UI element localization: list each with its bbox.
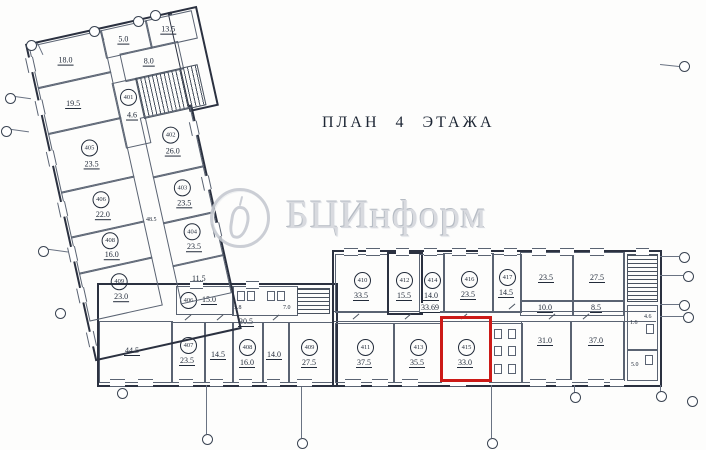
axis-leader-line [660, 316, 683, 317]
room-14-0[interactable]: 14.0 [262, 322, 290, 383]
corridor-10-0-area: 10.0 [537, 303, 553, 313]
wc-b-area: 7.0 [283, 305, 291, 311]
window [344, 248, 358, 256]
axis-leader-line [660, 275, 683, 276]
window [452, 248, 466, 256]
axis-leader-line [206, 385, 207, 434]
room-409-area: 27.5 [301, 358, 317, 368]
axis-marker [683, 312, 694, 323]
window [372, 379, 388, 387]
room-407-area: 23.5 [179, 356, 195, 366]
axis-marker [679, 252, 690, 263]
room-8-area: 8.0 [143, 57, 155, 67]
window [478, 248, 491, 256]
window [588, 379, 604, 387]
toilet-fixture [277, 291, 285, 301]
axis-leader-line [660, 256, 679, 257]
annex-4-6-area: 4.6 [644, 314, 652, 320]
window [636, 248, 649, 256]
toilet-fixture [494, 346, 502, 356]
staircase-right-wing [627, 254, 658, 302]
toilet-fixture [646, 324, 654, 334]
room-409-west-number: 409 [111, 273, 128, 290]
room-23-5-east[interactable]: 23.5 [520, 252, 574, 302]
axis-leader-line [660, 64, 679, 67]
axis-marker [26, 40, 37, 51]
room-5-area: 5.0 [117, 35, 129, 45]
room-23-5-east-area: 23.5 [538, 273, 554, 283]
room-415-selected[interactable]: 415 33.0 [440, 316, 492, 382]
axis-marker [1, 126, 12, 137]
window [110, 379, 125, 387]
axis-leader-line [9, 129, 29, 133]
toilet-fixture [645, 355, 653, 365]
toilet-fixture [494, 364, 502, 374]
room-408-west-number: 408 [102, 232, 119, 249]
window [424, 248, 437, 256]
room-403-area: 23.5 [176, 198, 192, 208]
corridor-10-0[interactable]: 10.0 [520, 300, 574, 316]
axis-marker [5, 93, 16, 104]
room-409-west-area: 23.0 [113, 292, 129, 302]
window [590, 248, 604, 256]
room-401-number: 401 [120, 89, 137, 106]
watermark-text: БЦИнформ [286, 195, 487, 235]
staircase-junction [297, 288, 330, 314]
plan-title: ПЛАН 4 ЭТАЖА [322, 114, 495, 132]
room-417-area: 14.5 [498, 288, 514, 298]
wc-right-annex[interactable]: 1.6 4.6 [627, 305, 658, 351]
toilet-fixture [494, 329, 502, 339]
window [267, 379, 280, 387]
toilet-fixture [267, 291, 275, 301]
toilet-fixture [508, 329, 516, 339]
toilet-fixture [508, 364, 516, 374]
room-403-number: 403 [174, 179, 191, 196]
axis-marker [55, 308, 66, 319]
room-406-west-number: 406 [93, 191, 110, 208]
axis-marker [679, 300, 690, 311]
room-401-area: 4.6 [126, 111, 138, 121]
window [190, 281, 203, 289]
axis-marker [570, 392, 581, 403]
room-411[interactable]: 411 37.5 [335, 323, 395, 383]
room-409-number: 409 [301, 339, 318, 356]
room-417[interactable]: 417 14.5 [492, 254, 522, 313]
room-414-number: 414 [424, 272, 441, 289]
room-416[interactable]: 416 23.5 [443, 253, 494, 313]
axis-marker [133, 16, 144, 27]
corridor-dim-48-5: 48.5 [146, 217, 157, 223]
room-405-area: 23.5 [84, 159, 100, 169]
room-410-area: 33.5 [353, 291, 369, 301]
room-31-0-area: 31.0 [537, 336, 553, 346]
corridor-8-5[interactable]: 8.5 [572, 300, 624, 316]
room-409[interactable]: 409 27.5 [288, 322, 334, 383]
corridor-33-69-area: 33.69 [420, 303, 440, 313]
axis-marker [487, 438, 498, 449]
room-31-0[interactable]: 31.0 [521, 321, 572, 383]
axis-leader-line [491, 385, 492, 438]
annex-wall [624, 252, 625, 381]
room-408-number: 408 [239, 339, 256, 356]
window [189, 121, 200, 136]
axis-leader-line [301, 385, 302, 438]
room-13-5-area: 13.5 [160, 25, 176, 35]
room-402-area: 26.0 [165, 147, 181, 157]
window [504, 248, 517, 256]
room-408-west-area: 16.0 [104, 250, 120, 260]
window [138, 379, 153, 387]
room-19-5-area: 19.5 [65, 99, 81, 109]
room-412-area: 15.5 [396, 291, 412, 301]
axis-marker [679, 61, 690, 72]
window [201, 175, 212, 190]
room-412-number: 412 [396, 272, 413, 289]
room-410-number: 410 [354, 272, 371, 289]
room-411-area: 37.5 [356, 358, 372, 368]
window [179, 379, 193, 387]
wc-right-wing[interactable] [489, 323, 523, 383]
axis-marker [656, 391, 667, 402]
axis-marker [297, 438, 308, 449]
room-404-area: 23.5 [186, 242, 202, 252]
window [610, 379, 624, 387]
window [366, 248, 380, 256]
room-14-0-area: 14.0 [266, 350, 282, 360]
window [402, 379, 418, 387]
room-413[interactable]: 413 35.5 [393, 323, 442, 383]
room-408-area: 16.0 [239, 358, 255, 368]
window [396, 248, 409, 256]
room-414-area: 14.0 [423, 291, 439, 301]
window [560, 248, 574, 256]
room-416-number: 416 [461, 271, 478, 288]
annex-5-0-area: 5.0 [631, 362, 639, 368]
room-411-number: 411 [357, 339, 374, 356]
room-413-area: 35.5 [409, 358, 425, 368]
room-405-number: 405 [81, 139, 98, 156]
room-404-number: 404 [184, 223, 201, 240]
room-415-number: 415 [458, 339, 475, 356]
room-410[interactable]: 410 33.5 [335, 254, 389, 313]
window [239, 379, 252, 387]
room-406-west-area: 22.0 [95, 210, 111, 220]
corridor-8-5-area: 8.5 [590, 303, 602, 313]
room-37-0-area: 37.0 [588, 336, 604, 346]
window [210, 379, 223, 387]
axis-marker [117, 388, 128, 399]
room-417-number: 417 [499, 269, 516, 286]
axis-marker [38, 246, 49, 257]
window [556, 379, 572, 387]
axis-marker [683, 271, 694, 282]
window [297, 379, 312, 387]
room-412[interactable]: 412 15.5 [387, 252, 423, 315]
window [530, 379, 546, 387]
room-413-number: 413 [410, 339, 427, 356]
room-18-area: 18.0 [58, 56, 74, 66]
room-5-0-annex[interactable]: 5.0 [627, 349, 658, 381]
room-27-5-east-area: 27.5 [589, 273, 605, 283]
window [246, 281, 259, 289]
room-415-area: 33.0 [457, 358, 473, 368]
floor-plan-canvas: ПЛАН 4 ЭТАЖА 18.0 5.0 13.5 8.0 19.5 401 … [0, 0, 706, 450]
room-14-5-area: 14.5 [210, 350, 226, 360]
axis-leader-line [46, 248, 68, 252]
axis-leader-line [660, 304, 679, 305]
window [532, 248, 546, 256]
room-27-5-east[interactable]: 27.5 [572, 252, 624, 302]
toilet-fixture [508, 346, 516, 356]
window [345, 379, 361, 387]
room-416-area: 23.5 [460, 290, 476, 300]
axis-marker [89, 26, 100, 37]
annex-1-6-area: 1.6 [630, 320, 638, 326]
axis-marker [150, 10, 161, 21]
room-37-0[interactable]: 37.0 [570, 321, 624, 383]
axis-marker [687, 396, 698, 407]
axis-marker [202, 434, 213, 445]
room-402-number: 402 [162, 127, 179, 144]
